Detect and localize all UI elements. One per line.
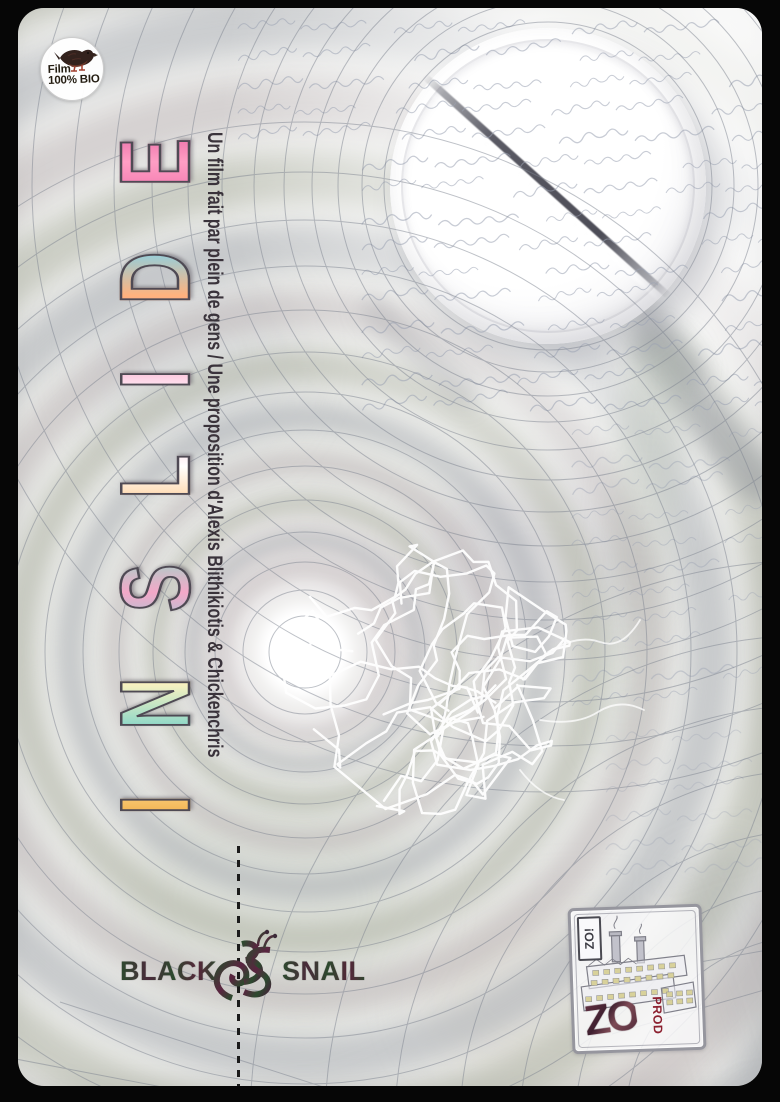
studio-word-black: BLACK xyxy=(120,958,217,985)
credit-line: Un film fait par plein de gens / Une pro… xyxy=(196,132,226,862)
stamp-corner-box: ZO! xyxy=(577,916,603,961)
stamp-main-label: ZO xyxy=(582,993,640,1044)
poster-card: Film 100% BIO INSLIDE Un film fait par p… xyxy=(18,8,762,1086)
stamp-side-label: PROD xyxy=(650,996,666,1044)
brain-sketch xyxy=(283,545,644,814)
film-poster: Film 100% BIO INSLIDE Un film fait par p… xyxy=(0,0,780,1102)
snail-bs-monogram-icon xyxy=(206,928,278,1012)
badge-line2: 100% BIO xyxy=(48,74,106,87)
studio-word-snail: SNAIL xyxy=(282,958,366,985)
zo-prod-stamp: ZO! ZO PROD xyxy=(567,904,706,1055)
stamp-corner-label: ZO! xyxy=(582,928,597,950)
film-title-text: INSLIDE xyxy=(99,73,212,815)
factory-icon xyxy=(571,907,704,1051)
badge-label: Film 100% BIO xyxy=(48,63,107,87)
